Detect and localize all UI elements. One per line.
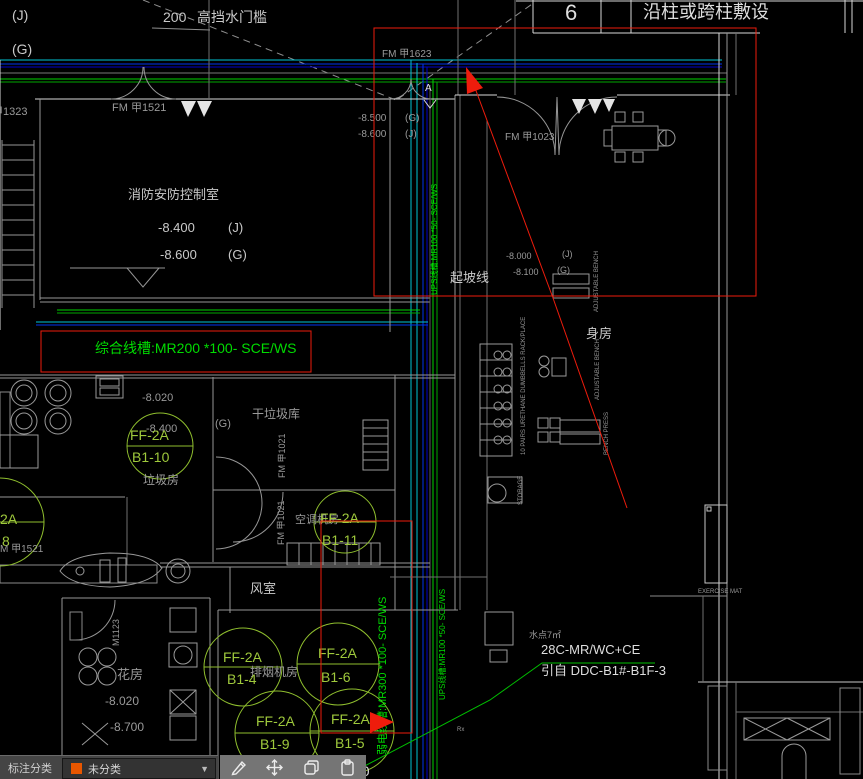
label-dim-200: 200 [163,10,186,24]
edit-icon[interactable] [229,758,248,777]
fan-b16-bot: B1-6 [321,670,351,684]
markup-layer [0,0,863,779]
level-main-b: -8.600 [358,130,386,140]
hatched-walls [0,392,860,774]
room-gym: 身房 [586,327,612,340]
room-flower: 花房 [117,668,143,681]
fixtures-lower-left [60,553,227,745]
grid-number: 6 [565,2,577,24]
horizontal-cable-runs [0,60,727,82]
door-tag-fm1021a: FM 甲1021 [278,433,287,478]
label-slope-line: 起坡线 [450,271,489,284]
level-flower-b: -8.700 [110,721,144,733]
door-tag-m1123: M1123 [112,619,121,646]
label-storage: STORAGE [518,476,524,505]
category-label: 标注分类 [8,760,52,776]
fan-b14-top: FF-2A [223,650,262,664]
fan-b110-top: FF-2A [130,428,169,442]
label-water-note: 水点7㎡ [529,631,561,640]
room-control: 消防安防控制室 [128,188,219,201]
axis-bubble-g: (G) [12,42,32,56]
door-tag-1323: 甲1323 [0,107,27,118]
grid-title: 沿柱或跨柱敷设 [643,3,769,21]
door-tag-fm1023: FM 甲1023 [505,133,554,143]
door-tag-fm1521: FM 甲1521 [112,103,166,114]
copy-icon[interactable] [302,758,321,777]
axis-gym-a: (J) [562,250,573,259]
axis-control-a: (J) [228,221,243,234]
markup-rect-bottom[interactable] [321,521,412,733]
label-bench-2: ADJUSTABLE BENCH [595,339,601,400]
cad-viewer-canvas[interactable]: 200 高挡水门槛 (J) (G) 甲1323 FM 甲1521 FM 甲162… [0,0,863,779]
fan-b16-top: FF-2A [318,646,357,660]
category-value: 未分类 [88,761,200,777]
move-icon[interactable] [265,758,284,777]
axis-garbage: (G) [215,419,231,430]
fan-b111-top: FF-2A [320,511,359,525]
level-8020a: -8.020 [142,393,173,404]
room-dry-garbage: 干垃圾库 [252,408,300,420]
label-dumbbell-rack: 10 PAIRS URETHANE DUMBBELLS RACK/PLACE [521,317,527,455]
chevron-down-icon: ▼ [200,764,209,774]
axis-ref-g2: (G) [405,114,419,124]
markup-annotations[interactable] [41,28,756,733]
elevation-mark [70,28,436,287]
axis-gym-b: (G) [557,266,570,275]
room-wind: 风室 [250,582,276,595]
axis-bubble-j: (J) [12,8,28,22]
fan-b111-bot: B1-11 [322,533,358,547]
fan-b15-top: FF-2A [331,712,370,726]
label-threshold: 高挡水门槛 [197,10,267,24]
label-exercise-mat: EXERCISE MAT [698,589,742,595]
door-tag-fm1623: FM 甲1623 [382,50,431,60]
gym-equipment [480,112,727,583]
annotation-toolbar: 标注分类 未分类 ▼ [0,755,218,779]
drawing-linework [0,0,863,779]
label-bench-1: ADJUSTABLE BENCH [594,251,600,312]
tray-label-main: 综合线槽:MR200 *100- SCE/WS [95,341,297,355]
room-garbage: 垃圾房 [143,474,179,486]
axis-ref-j2: (J) [405,130,417,140]
tray-label-ups1: UPS线槽:MR100 *50- SCE/WS [431,184,439,295]
door-tag-m1521: M 甲1521 [0,545,43,555]
label-bench-3: BENCH PRESS [604,412,610,455]
room-smoke: 排烟机房 [250,666,298,678]
feeder-circuit: 28C-MR/WC+CE [541,643,640,656]
category-color-swatch [71,763,82,774]
walls [0,0,863,779]
axis-control-b: (G) [228,248,247,261]
level-gym-b: -8.100 [513,268,539,277]
vertical-cable-runs [411,60,437,779]
tray-label-weak: 弱电线槽:MR300 *100- SCE/WS [378,597,389,755]
level-control-b: -8.600 [160,248,197,261]
fan-b110-bot: B1-10 [132,450,169,464]
pump-equipment [0,376,123,468]
tray-run-lines [0,131,428,327]
paste-icon[interactable] [338,758,357,777]
tray-label-ups2: UPS线槽:MR100 *50- SCE/WS [439,589,447,700]
markup-arrowhead[interactable] [466,67,483,94]
fan-b15-bot: B1-5 [335,736,365,750]
fan-b19-bot: B1-9 [260,737,290,751]
door-tag-fm1021b: FM 甲1021 [277,500,286,545]
level-control-a: -8.400 [158,221,195,234]
fan-b18-top: 2A [0,512,17,526]
level-main-a: -8.500 [358,114,386,124]
level-flower-a: -8.020 [105,695,139,707]
section-mark-a: A [425,84,432,94]
stairs [2,140,34,308]
level-gym-a: -8.000 [506,252,532,261]
feeder-source: 引自 DDC-B1#-B1F-3 [541,664,666,677]
category-dropdown[interactable]: 未分类 ▼ [62,758,216,779]
fan-b19-top: FF-2A [256,714,295,728]
toolbar-icon-group [220,755,366,779]
fan-b14-bot: B1-4 [227,672,257,686]
label-rx: Rx [457,727,464,733]
